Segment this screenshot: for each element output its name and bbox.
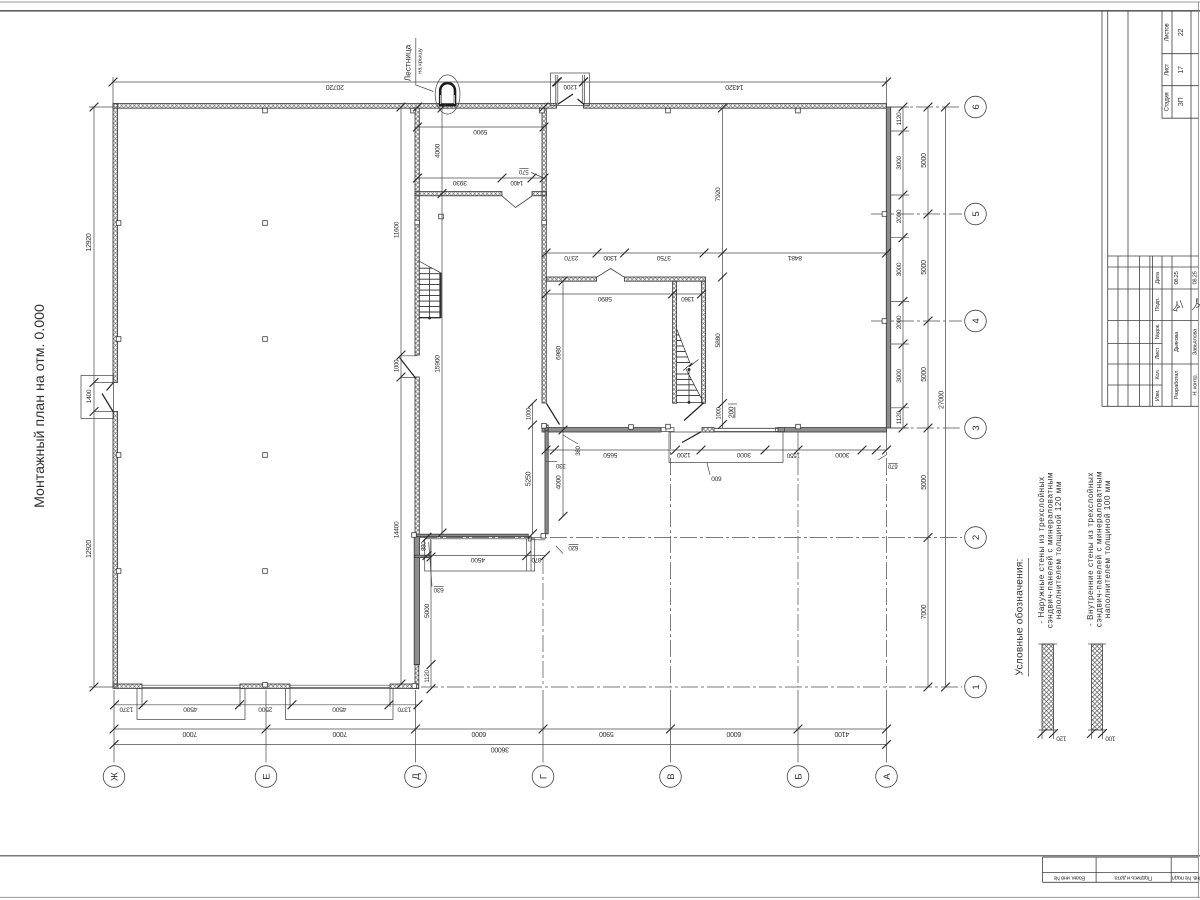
svg-text:6980: 6980 [556, 346, 563, 360]
svg-text:1: 1 [971, 684, 982, 689]
svg-text:Подп.: Подп. [1155, 297, 1161, 312]
svg-text:Дата: Дата [1155, 271, 1161, 284]
svg-text:7000: 7000 [921, 604, 928, 619]
svg-text:В: В [666, 773, 677, 779]
svg-text:4: 4 [971, 318, 982, 324]
svg-text:5000: 5000 [921, 367, 928, 382]
svg-text:5000: 5000 [921, 153, 928, 168]
svg-text:ЗП: ЗП [1178, 97, 1185, 106]
svg-text:3: 3 [971, 425, 982, 430]
svg-text:14400: 14400 [394, 521, 401, 538]
svg-text:8481: 8481 [788, 254, 802, 261]
svg-text:2500: 2500 [258, 706, 272, 713]
svg-text:3000: 3000 [737, 451, 751, 458]
svg-text:1000: 1000 [526, 407, 532, 420]
svg-text:670: 670 [887, 463, 897, 470]
svg-text:2000: 2000 [896, 209, 903, 223]
svg-text:Лист: Лист [1155, 347, 1161, 359]
svg-text:36000: 36000 [491, 746, 509, 753]
svg-text:380: 380 [575, 445, 582, 455]
svg-text:200: 200 [727, 407, 736, 419]
svg-text:08.25: 08.25 [1174, 271, 1180, 284]
svg-text:2: 2 [971, 535, 982, 540]
svg-text:4000: 4000 [435, 144, 442, 158]
svg-text:15900: 15900 [435, 355, 442, 373]
svg-text:4100: 4100 [834, 730, 849, 737]
svg-text:1370: 1370 [397, 706, 411, 713]
svg-text:4500: 4500 [183, 706, 197, 713]
svg-text:1120: 1120 [896, 411, 903, 425]
svg-text:4500: 4500 [471, 556, 485, 563]
svg-text:Подпись и дата: Подпись и дата [1114, 875, 1153, 881]
svg-text:1300: 1300 [603, 254, 617, 261]
svg-text:12920: 12920 [86, 540, 93, 558]
svg-text:Стадия: Стадия [1165, 93, 1171, 112]
svg-text:14320: 14320 [725, 83, 743, 90]
svg-text:3750: 3750 [657, 254, 671, 261]
svg-text:880: 880 [422, 541, 428, 551]
svg-text:4500: 4500 [332, 706, 346, 713]
svg-text:5900: 5900 [473, 128, 487, 135]
svg-text:Е: Е [261, 773, 272, 779]
svg-text:3930: 3930 [453, 179, 467, 186]
svg-text:5650: 5650 [603, 451, 617, 458]
svg-text:620: 620 [568, 544, 579, 551]
svg-text:5000: 5000 [921, 475, 928, 490]
svg-text:1400: 1400 [510, 179, 523, 186]
svg-text:27000: 27000 [939, 391, 946, 409]
svg-text:Инв. № подл.: Инв. № подл. [1170, 875, 1200, 881]
svg-text:№док.: №док. [1155, 323, 1161, 339]
svg-text:4000: 4000 [556, 475, 563, 489]
svg-text:1370: 1370 [119, 706, 133, 713]
svg-text:17: 17 [1178, 66, 1185, 74]
svg-text:наполнителем толщиной 120 мм: наполнителем толщиной 120 мм [1054, 481, 1063, 619]
svg-text:1120: 1120 [424, 669, 431, 682]
svg-text:1200: 1200 [677, 451, 691, 458]
svg-text:Кол.: Кол. [1155, 369, 1161, 380]
svg-text:5000: 5000 [921, 260, 928, 275]
svg-text:6000: 6000 [726, 730, 741, 737]
svg-text:630: 630 [433, 586, 444, 593]
svg-text:наполнителем толщиной 100 мм: наполнителем толщиной 100 мм [1103, 480, 1112, 618]
svg-text:7000: 7000 [182, 730, 197, 737]
svg-text:1400: 1400 [86, 389, 93, 403]
svg-text:3000: 3000 [896, 369, 903, 383]
svg-text:7920: 7920 [715, 187, 722, 201]
svg-text:Г: Г [538, 773, 549, 779]
svg-text:1550: 1550 [786, 452, 800, 459]
svg-text:Лист: Лист [1165, 64, 1171, 76]
svg-text:600: 600 [711, 475, 722, 482]
svg-text:Б: Б [793, 773, 804, 779]
svg-text:20720: 20720 [326, 83, 344, 90]
svg-text:Дьякова: Дьякова [1174, 331, 1180, 352]
svg-text:1200: 1200 [563, 83, 577, 90]
svg-text:11600: 11600 [394, 221, 401, 238]
svg-text:1120: 1120 [896, 112, 903, 126]
svg-text:Ж: Ж [109, 772, 120, 781]
svg-text:Листов: Листов [1165, 24, 1171, 42]
svg-text:5250: 5250 [525, 471, 532, 486]
svg-text:5880: 5880 [715, 333, 722, 347]
svg-text:22: 22 [1178, 29, 1185, 37]
svg-text:330: 330 [555, 462, 565, 469]
svg-text:2370: 2370 [564, 254, 578, 261]
svg-text:Н. контр.: Н. контр. [1193, 374, 1199, 396]
svg-text:Взам. инв №: Взам. инв № [1054, 875, 1085, 881]
svg-text:Д: Д [411, 773, 422, 780]
svg-text:Условные обозначения:: Условные обозначения: [1014, 558, 1026, 675]
svg-text:3000: 3000 [835, 451, 849, 458]
svg-text:1000: 1000 [716, 406, 722, 419]
svg-text:Разработал: Разработал [1174, 371, 1180, 400]
svg-text:Монтажный план на отм. 0.000: Монтажный план на отм. 0.000 [32, 304, 48, 508]
svg-text:на крышу: на крышу [418, 48, 424, 74]
svg-text:Завьялова: Завьялова [1193, 328, 1199, 355]
svg-text:5: 5 [971, 211, 982, 216]
svg-text:870: 870 [531, 556, 541, 563]
svg-text:А: А [882, 773, 893, 780]
svg-text:2000: 2000 [896, 315, 903, 329]
svg-text:Изм.: Изм. [1155, 389, 1161, 401]
svg-text:3000: 3000 [896, 262, 903, 276]
svg-text:5000: 5000 [424, 604, 431, 618]
svg-text:120: 120 [1056, 734, 1067, 741]
svg-text:3000: 3000 [896, 156, 903, 170]
svg-text:6000: 6000 [471, 730, 486, 737]
svg-text:7000: 7000 [332, 730, 347, 737]
svg-text:5900: 5900 [599, 730, 614, 737]
svg-text:1360: 1360 [681, 295, 695, 302]
svg-text:12920: 12920 [86, 233, 93, 251]
svg-text:100: 100 [1105, 734, 1116, 741]
svg-text:570: 570 [518, 168, 528, 175]
svg-text:Лестница: Лестница [403, 44, 413, 81]
svg-text:6: 6 [971, 104, 982, 109]
svg-text:08.25: 08.25 [1193, 271, 1199, 284]
svg-text:1000: 1000 [394, 359, 401, 372]
svg-text:5890: 5890 [598, 295, 612, 302]
